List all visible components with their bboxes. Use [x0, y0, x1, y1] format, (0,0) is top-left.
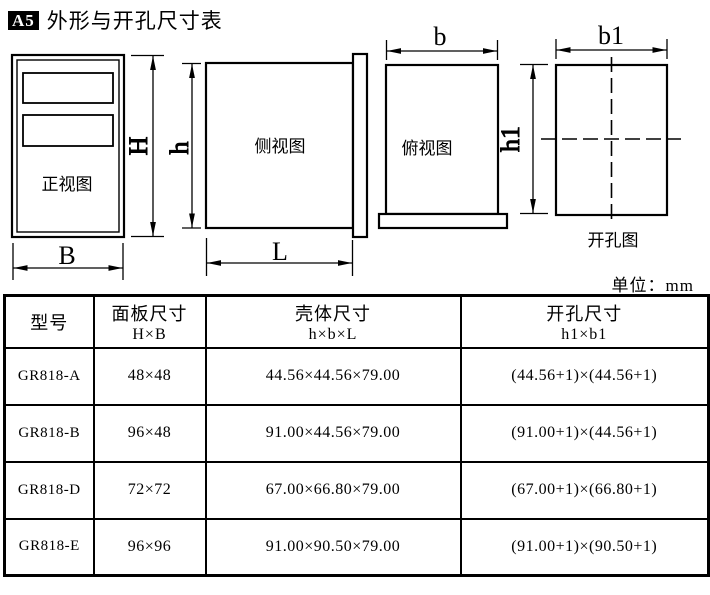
front-view: 正视图 H B: [12, 55, 164, 280]
table-row: GR818-A 48×48 44.56×44.56×79.00 (44.56+1…: [5, 348, 709, 405]
cell-model: GR818-D: [5, 462, 94, 519]
dim-label-H: H: [124, 136, 153, 155]
dim-label-b1: b1: [598, 21, 624, 50]
header-model-label: 型号: [6, 309, 93, 335]
cell-model: GR818-A: [5, 348, 94, 405]
header-panel-sub: H×B: [95, 326, 205, 344]
dimension-drawings: 正视图 H B h: [0, 0, 710, 296]
cell-cutout-size: (44.56+1)×(44.56+1): [461, 348, 709, 405]
header-panel-title: 面板尺寸: [95, 300, 205, 326]
header-model: 型号: [5, 296, 94, 348]
cutout-view-label: 开孔图: [588, 231, 639, 250]
table-row: GR818-D 72×72 67.00×66.80×79.00 (67.00+1…: [5, 462, 709, 519]
front-view-label: 正视图: [42, 175, 93, 194]
side-view: h 侧视图 L: [165, 54, 367, 276]
dim-label-h1: h1: [496, 126, 525, 152]
cell-panel-size: 96×96: [94, 519, 206, 576]
cell-panel-size: 72×72: [94, 462, 206, 519]
cell-panel-size: 48×48: [94, 348, 206, 405]
cell-case-size: 44.56×44.56×79.00: [206, 348, 461, 405]
side-view-label: 侧视图: [255, 137, 306, 156]
cell-cutout-size: (91.00+1)×(44.56+1): [461, 405, 709, 462]
dim-label-b: b: [434, 22, 447, 51]
document-page: A5 外形与开孔尺寸表 正视图 H: [0, 0, 710, 595]
cell-panel-size: 96×48: [94, 405, 206, 462]
front-view-display-window-2: [23, 115, 113, 146]
top-view-label: 俯视图: [402, 139, 453, 158]
dim-label-h: h: [165, 142, 194, 155]
dimensions-table: 型号 面板尺寸 H×B 壳体尺寸 h×b×L 开孔尺寸 h1×b1 GR818-…: [3, 294, 710, 577]
table-row: GR818-B 96×48 91.00×44.56×79.00 (91.00+1…: [5, 405, 709, 462]
header-case-size: 壳体尺寸 h×b×L: [206, 296, 461, 348]
top-view: b 俯视图 h1: [379, 22, 548, 228]
cell-case-size: 91.00×44.56×79.00: [206, 405, 461, 462]
header-panel-size: 面板尺寸 H×B: [94, 296, 206, 348]
cell-model: GR818-E: [5, 519, 94, 576]
cell-case-size: 67.00×66.80×79.00: [206, 462, 461, 519]
table-header-row: 型号 面板尺寸 H×B 壳体尺寸 h×b×L 开孔尺寸 h1×b1: [5, 296, 709, 348]
side-view-front-flange: [353, 54, 367, 237]
cutout-view: b1 开孔图: [541, 21, 681, 250]
header-cutout-sub: h1×b1: [462, 326, 708, 344]
cell-cutout-size: (91.00+1)×(90.50+1): [461, 519, 709, 576]
cell-model: GR818-B: [5, 405, 94, 462]
unit-label: 单位：mm: [612, 271, 694, 296]
dim-label-B: B: [58, 241, 75, 270]
header-cutout-title: 开孔尺寸: [462, 300, 708, 326]
dim-label-L: L: [272, 237, 288, 266]
cell-cutout-size: (67.00+1)×(66.80+1): [461, 462, 709, 519]
cell-case-size: 91.00×90.50×79.00: [206, 519, 461, 576]
top-view-front-flange: [379, 214, 507, 228]
front-view-display-window-1: [23, 73, 113, 103]
header-cutout-size: 开孔尺寸 h1×b1: [461, 296, 709, 348]
table-row: GR818-E 96×96 91.00×90.50×79.00 (91.00+1…: [5, 519, 709, 576]
header-case-title: 壳体尺寸: [207, 300, 460, 326]
header-case-sub: h×b×L: [207, 326, 460, 344]
